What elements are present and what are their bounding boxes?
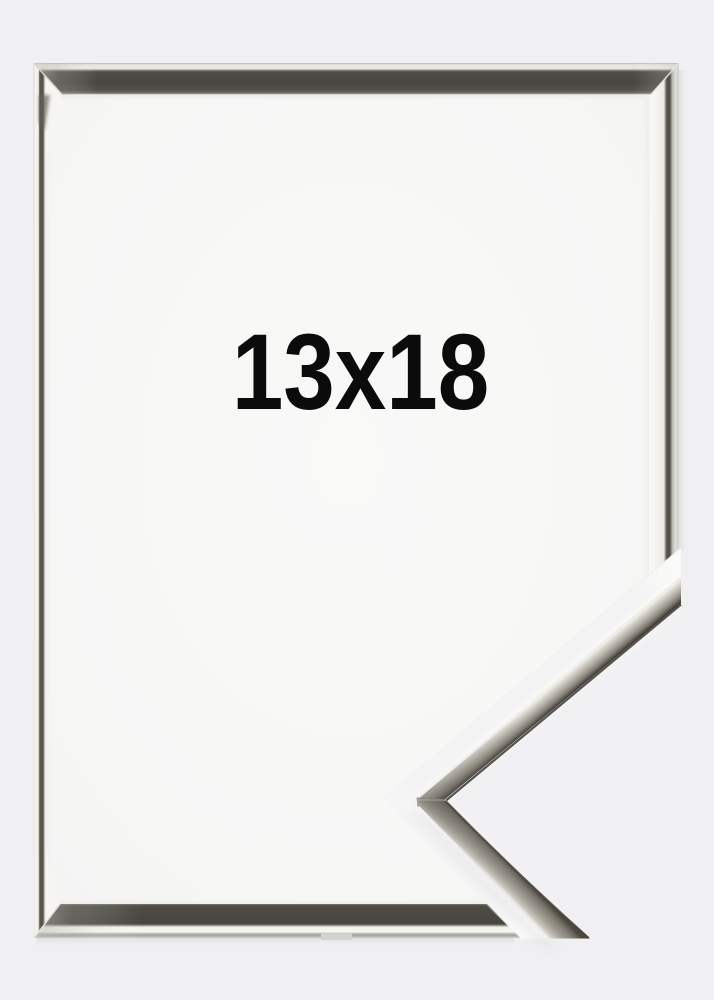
svg-text:13x18: 13x18 — [232, 312, 489, 432]
